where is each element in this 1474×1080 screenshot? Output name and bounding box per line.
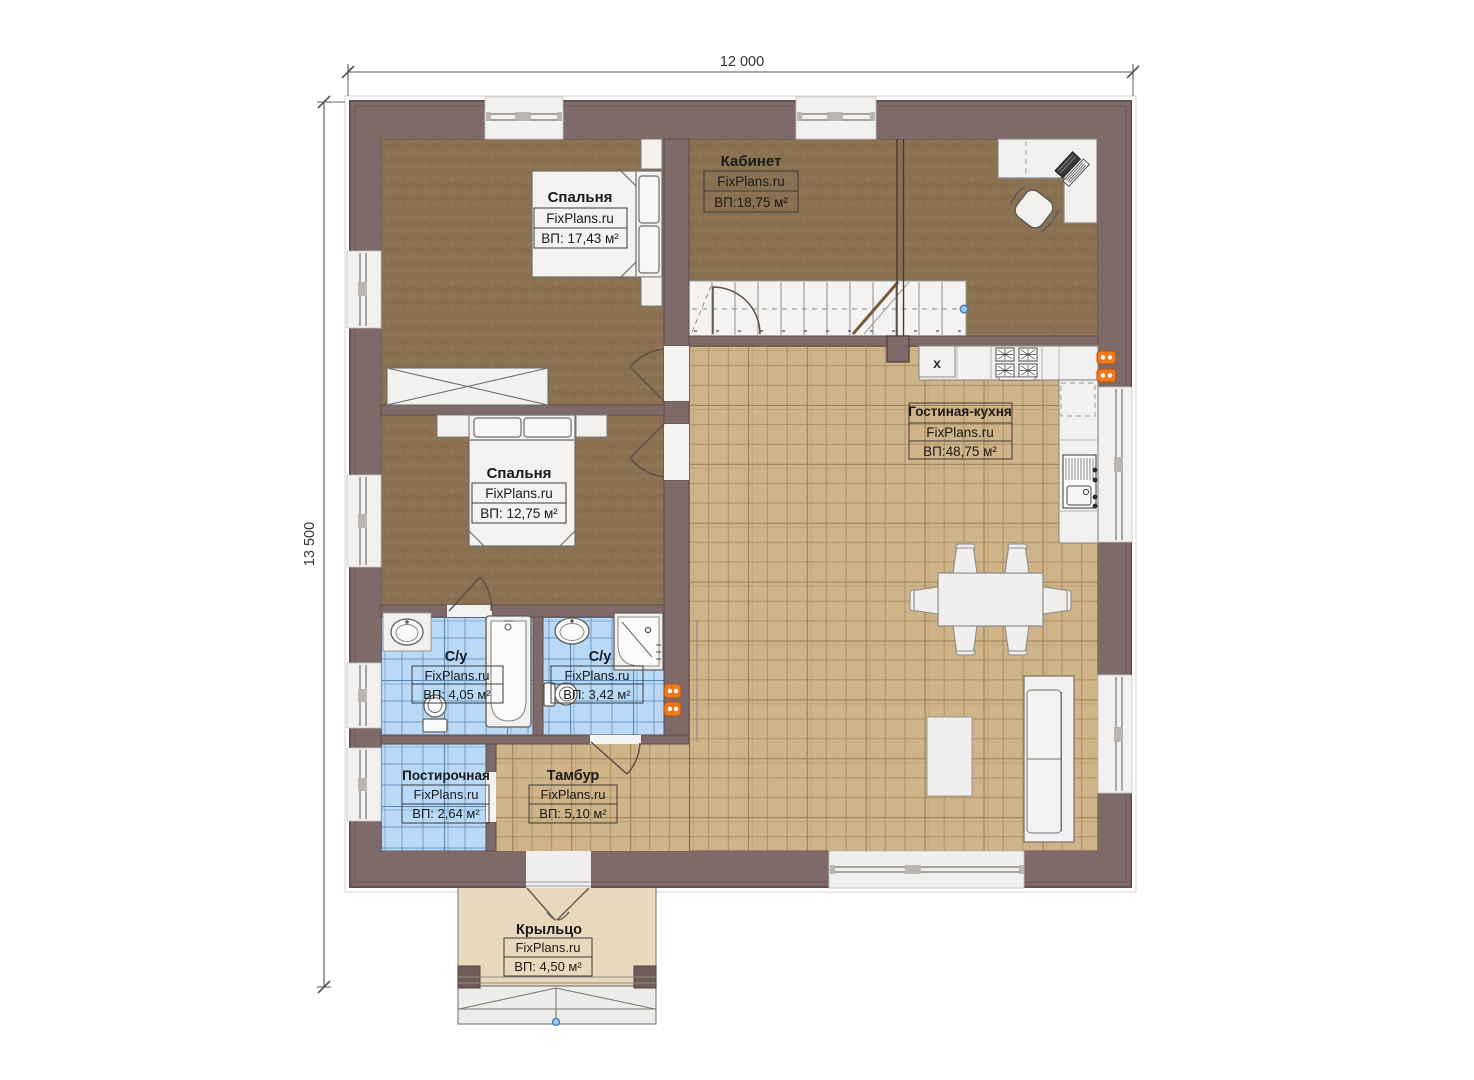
svg-text:ВП: 5,10 м²: ВП: 5,10 м² <box>539 806 607 821</box>
svg-text:Спальня: Спальня <box>487 465 552 482</box>
svg-text:С/у: С/у <box>589 649 612 665</box>
svg-text:ВП: 3,42 м²: ВП: 3,42 м² <box>563 687 631 702</box>
svg-text:FixPlans.ru: FixPlans.ru <box>564 668 629 683</box>
svg-text:FixPlans.ru: FixPlans.ru <box>540 787 605 802</box>
svg-text:С/у: С/у <box>445 649 468 665</box>
svg-text:FixPlans.ru: FixPlans.ru <box>413 787 478 802</box>
svg-text:FixPlans.ru: FixPlans.ru <box>717 174 785 189</box>
svg-text:FixPlans.ru: FixPlans.ru <box>546 211 614 226</box>
svg-text:12 000: 12 000 <box>720 54 764 70</box>
svg-text:ВП: 17,43 м²: ВП: 17,43 м² <box>541 231 619 246</box>
svg-text:ВП:18,75 м²: ВП:18,75 м² <box>714 195 788 210</box>
svg-text:FixPlans.ru: FixPlans.ru <box>926 425 994 440</box>
svg-text:Гостиная-кухня: Гостиная-кухня <box>908 404 1011 419</box>
svg-text:Кабинет: Кабинет <box>721 153 782 170</box>
svg-text:13 500: 13 500 <box>302 522 318 566</box>
svg-text:Крыльцо: Крыльцо <box>516 922 582 938</box>
svg-text:ВП: 2,64 м²: ВП: 2,64 м² <box>412 806 480 821</box>
svg-text:Постирочная: Постирочная <box>402 768 490 783</box>
svg-text:x: x <box>933 355 941 371</box>
svg-text:FixPlans.ru: FixPlans.ru <box>424 668 489 683</box>
svg-text:FixPlans.ru: FixPlans.ru <box>515 940 580 955</box>
svg-text:ВП: 12,75 м²: ВП: 12,75 м² <box>480 506 558 521</box>
svg-text:ВП: 4,05 м²: ВП: 4,05 м² <box>423 687 491 702</box>
svg-text:ВП:48,75 м²: ВП:48,75 м² <box>923 444 997 459</box>
svg-text:FixPlans.ru: FixPlans.ru <box>485 486 553 501</box>
svg-text:Тамбур: Тамбур <box>547 768 600 784</box>
svg-text:Спальня: Спальня <box>548 189 613 206</box>
svg-text:ВП: 4,50 м²: ВП: 4,50 м² <box>514 959 582 974</box>
